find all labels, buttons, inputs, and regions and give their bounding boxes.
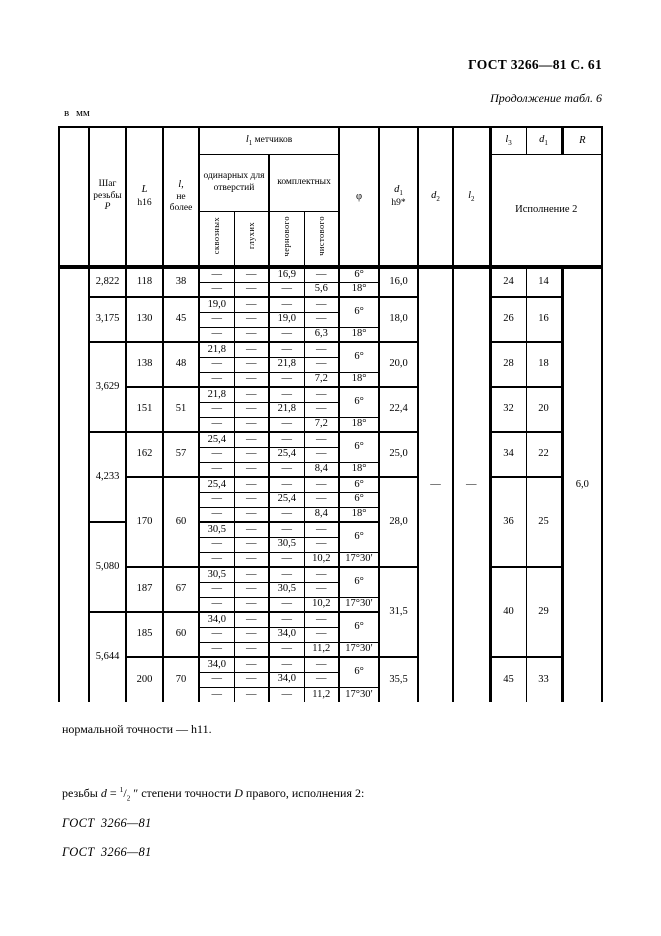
cell-tap-through: 34,0	[199, 657, 234, 672]
cell-tap-through: —	[199, 447, 234, 462]
cell-tap-finish: —	[304, 672, 339, 687]
cell-L: 162	[126, 432, 163, 477]
cell-d1-exec2: 22	[526, 432, 562, 477]
cell-phi: 6°	[339, 612, 379, 642]
cell-tap-finish: 8,4	[304, 462, 339, 477]
cell-tap-rough: 34,0	[269, 627, 304, 642]
col-header-execution-2: Исполнение 2	[490, 154, 602, 267]
cell-pitch: 3,175	[89, 297, 126, 342]
cell-pitch: 5,080	[89, 522, 126, 612]
cell-tap-through: —	[199, 282, 234, 297]
col-header-through: сквозных	[199, 211, 234, 267]
cell-tap-blind: —	[234, 477, 269, 492]
cell-phi: 6°	[339, 522, 379, 552]
cell-d2-span: —	[418, 267, 453, 702]
cell-tap-through: —	[199, 492, 234, 507]
cell-l: 57	[163, 432, 199, 477]
cell-phi: 6°	[339, 567, 379, 597]
cell-tap-through: 34,0	[199, 612, 234, 627]
cell-l: 48	[163, 342, 199, 387]
cell-tap-finish: 10,2	[304, 597, 339, 612]
cell-tap-rough: —	[269, 432, 304, 447]
cell-tap-rough: —	[269, 417, 304, 432]
cell-tap-through: 21,8	[199, 342, 234, 357]
cell-tap-rough: 30,5	[269, 537, 304, 552]
table-continuation-label: Продолжение табл. 6	[490, 91, 602, 106]
cell-tap-rough: —	[269, 612, 304, 627]
cell-tap-blind: —	[234, 372, 269, 387]
cell-tap-finish: 8,4	[304, 507, 339, 522]
cell-tap-rough: —	[269, 282, 304, 297]
cell-tap-blind: —	[234, 357, 269, 372]
col-header-L: Lh16	[126, 127, 163, 267]
cell-d1-exec2: 18	[526, 342, 562, 387]
cell-tap-finish: —	[304, 567, 339, 582]
cell-tap-finish: —	[304, 267, 339, 282]
cell-tap-finish: 10,2	[304, 552, 339, 567]
col-header-complete-taps: комплектных	[269, 154, 339, 211]
cell-tap-blind: —	[234, 657, 269, 672]
col-header-l2: l2	[453, 127, 490, 267]
cell-L: 187	[126, 567, 163, 612]
cell-tap-blind: —	[234, 447, 269, 462]
cell-l3: 24	[490, 267, 526, 297]
cell-phi: 18°	[339, 462, 379, 477]
cell-d1: 31,5	[379, 567, 418, 657]
cell-tap-blind: —	[234, 327, 269, 342]
cell-tap-blind: —	[234, 492, 269, 507]
cell-tap-finish: —	[304, 342, 339, 357]
cell-tap-rough: 25,4	[269, 492, 304, 507]
cell-tap-rough: —	[269, 387, 304, 402]
cell-tap-through: —	[199, 582, 234, 597]
cell-tap-blind: —	[234, 567, 269, 582]
cell-tap-through: 30,5	[199, 567, 234, 582]
col-header-d2: d2	[418, 127, 453, 267]
cell-tap-through: —	[199, 507, 234, 522]
cell-d1-exec2: 33	[526, 657, 562, 702]
cell-L: 130	[126, 297, 163, 342]
cell-tap-rough: 30,5	[269, 582, 304, 597]
cell-tap-rough: —	[269, 342, 304, 357]
cell-L: 170	[126, 477, 163, 567]
cell-d1: 20,0	[379, 342, 418, 387]
col-header-l-max: l,неболее	[163, 127, 199, 267]
col-header-d1: d1h9*	[379, 127, 418, 267]
cell-tap-finish: 11,2	[304, 642, 339, 657]
cell-phi: 17°30′	[339, 642, 379, 657]
col-header-R: R	[562, 127, 602, 154]
cell-pitch: 4,233	[89, 432, 126, 522]
cell-tap-blind: —	[234, 342, 269, 357]
cell-tap-rough: 16,9	[269, 267, 304, 282]
cell-l: 60	[163, 612, 199, 657]
cell-phi: 6°	[339, 432, 379, 462]
cell-tap-finish: 7,2	[304, 417, 339, 432]
cell-tap-rough: —	[269, 477, 304, 492]
cell-tap-rough: —	[269, 597, 304, 612]
cell-l3: 45	[490, 657, 526, 702]
cell-L: 200	[126, 657, 163, 702]
cell-tap-rough: —	[269, 507, 304, 522]
cell-tap-through: —	[199, 402, 234, 417]
col-header-pitch: ШагрезьбыР	[89, 127, 126, 267]
cell-tap-finish: —	[304, 402, 339, 417]
col-header-empty	[59, 127, 89, 267]
col-header-finish: чистового	[304, 211, 339, 267]
cell-tap-finish: —	[304, 297, 339, 312]
pitch-label: Шаг	[99, 179, 117, 189]
cell-tap-finish: —	[304, 582, 339, 597]
cell-tap-through: —	[199, 687, 234, 702]
cell-tap-finish: 7,2	[304, 372, 339, 387]
table-row: 187 67 30,5 — — — 6° 31,5 40 29	[59, 567, 602, 582]
cell-tap-finish: 11,2	[304, 687, 339, 702]
table-row: 200 70 34,0 — — — 6° 35,5 45 33	[59, 657, 602, 672]
cell-tap-finish: —	[304, 522, 339, 537]
cell-phi: 6°	[339, 492, 379, 507]
col-header-blind: глухих	[234, 211, 269, 267]
col-header-d1-exec: d1	[526, 127, 562, 154]
cell-L: 151	[126, 387, 163, 432]
col-header-l3: l3	[490, 127, 526, 154]
gost-reference-2: ГОСТ 3266—81	[62, 845, 152, 860]
cell-tap-blind: —	[234, 537, 269, 552]
cell-tap-finish: —	[304, 477, 339, 492]
cell-d1-exec2: 14	[526, 267, 562, 297]
cell-tap-finish: —	[304, 357, 339, 372]
cell-phi: 17°30′	[339, 597, 379, 612]
cell-tap-rough: —	[269, 687, 304, 702]
cell-tap-rough: —	[269, 552, 304, 567]
cell-tap-blind: —	[234, 462, 269, 477]
cell-tap-blind: —	[234, 552, 269, 567]
cell-tap-through: —	[199, 627, 234, 642]
phi-symbol: φ	[356, 191, 362, 202]
cell-tap-blind: —	[234, 312, 269, 327]
table-row: 2,822 118 38 — — 16,9 — 6° 16,0 — — 24 1…	[59, 267, 602, 282]
cell-tap-blind: —	[234, 522, 269, 537]
cell-tap-through: —	[199, 642, 234, 657]
cell-tap-rough: —	[269, 657, 304, 672]
cell-d1-exec2: 20	[526, 387, 562, 432]
cell-tap-rough: 21,8	[269, 402, 304, 417]
cell-l3: 40	[490, 567, 526, 657]
cell-phi: 6°	[339, 477, 379, 492]
cell-tap-rough: —	[269, 462, 304, 477]
cell-d1-exec2: 29	[526, 567, 562, 657]
cell-tap-blind: —	[234, 642, 269, 657]
cell-l2-span: —	[453, 267, 490, 702]
cell-tap-through: —	[199, 672, 234, 687]
cell-phi: 18°	[339, 372, 379, 387]
cell-phi: 18°	[339, 282, 379, 297]
cell-L: 118	[126, 267, 163, 297]
cell-tap-through: —	[199, 312, 234, 327]
cell-tap-blind: —	[234, 627, 269, 642]
cell-d1-exec2: 25	[526, 477, 562, 567]
cell-tap-blind: —	[234, 387, 269, 402]
cell-tap-blind: —	[234, 612, 269, 627]
table-row: ШагрезьбыР Lh16 l,неболее l1 метчиков φ …	[59, 127, 602, 154]
col-header-l1-taps: l1 метчиков	[199, 127, 339, 154]
cell-tap-finish: 6,3	[304, 327, 339, 342]
cell-tap-through: —	[199, 417, 234, 432]
cell-tap-rough: —	[269, 372, 304, 387]
cell-tap-rough: —	[269, 327, 304, 342]
cell-tap-blind: —	[234, 402, 269, 417]
cell-tap-rough: —	[269, 522, 304, 537]
cell-tap-finish: —	[304, 447, 339, 462]
cell-tap-blind: —	[234, 672, 269, 687]
cell-tap-through: 19,0	[199, 297, 234, 312]
cell-L: 185	[126, 612, 163, 657]
col-header-single-taps: одинарных для отверстий	[199, 154, 269, 211]
cell-tap-finish: —	[304, 432, 339, 447]
cell-tap-rough: 25,4	[269, 447, 304, 462]
units-label: в мм	[64, 107, 90, 119]
cell-tap-rough: —	[269, 642, 304, 657]
cell-phi: 18°	[339, 417, 379, 432]
cell-tap-finish: —	[304, 657, 339, 672]
cell-tap-blind: —	[234, 282, 269, 297]
cell-tap-blind: —	[234, 432, 269, 447]
cell-l3: 36	[490, 477, 526, 567]
cell-d1: 22,4	[379, 387, 418, 432]
gost-reference-1: ГОСТ 3266—81	[62, 816, 152, 831]
cell-tap-rough: —	[269, 297, 304, 312]
cell-tap-finish: —	[304, 312, 339, 327]
cell-pitch: 2,822	[89, 267, 126, 297]
cell-l: 51	[163, 387, 199, 432]
cell-tap-through: 25,4	[199, 477, 234, 492]
cell-phi: 17°30′	[339, 687, 379, 702]
cell-l3: 26	[490, 297, 526, 342]
cell-tap-blind: —	[234, 507, 269, 522]
cell-tap-through: —	[199, 597, 234, 612]
col-header-phi: φ	[339, 127, 379, 267]
table-row: 151 51 21,8 — — — 6° 22,4 32 20	[59, 387, 602, 402]
cell-tap-blind: —	[234, 687, 269, 702]
cell-phi: 18°	[339, 327, 379, 342]
cell-tap-rough: 21,8	[269, 357, 304, 372]
footnote-accuracy: нормальной точности — h11.	[62, 722, 212, 737]
cell-tap-finish: —	[304, 387, 339, 402]
cell-phi: 6°	[339, 267, 379, 282]
spec-table: ШагрезьбыР Lh16 l,неболее l1 метчиков φ …	[58, 126, 603, 702]
gost-number-header: ГОСТ 3266—81 С. 61	[468, 57, 602, 73]
cell-tap-through: —	[199, 552, 234, 567]
cell-tap-finish: —	[304, 537, 339, 552]
col-header-rough: чернового	[269, 211, 304, 267]
cell-tap-through: —	[199, 267, 234, 282]
table-row: 3,175 130 45 19,0 — — — 6° 18,0 26 16	[59, 297, 602, 312]
cell-tap-through: 21,8	[199, 387, 234, 402]
cell-d1-exec2: 16	[526, 297, 562, 342]
cell-l: 70	[163, 657, 199, 702]
cell-l: 67	[163, 567, 199, 612]
cell-l3: 34	[490, 432, 526, 477]
cell-tap-finish: —	[304, 492, 339, 507]
cell-l: 38	[163, 267, 199, 297]
cell-pitch: 3,629	[89, 342, 126, 432]
footnote-thread: резьбы d = 1/2 ″ степени точности D прав…	[62, 785, 364, 802]
cell-tap-rough: 34,0	[269, 672, 304, 687]
cell-phi: 17°30′	[339, 552, 379, 567]
cell-l3: 28	[490, 342, 526, 387]
table-row: 170 60 25,4 — — — 6° 28,0 36 25	[59, 477, 602, 492]
cell-tap-blind: —	[234, 267, 269, 282]
cell-tap-through: —	[199, 537, 234, 552]
cell-tap-through: 30,5	[199, 522, 234, 537]
cell-empty-col	[59, 267, 89, 702]
cell-phi: 18°	[339, 507, 379, 522]
cell-tap-through: 25,4	[199, 432, 234, 447]
cell-tap-blind: —	[234, 597, 269, 612]
table-row: 4,233 162 57 25,4 — — — 6° 25,0 34 22	[59, 432, 602, 447]
cell-phi: 6°	[339, 297, 379, 327]
cell-tap-through: —	[199, 462, 234, 477]
cell-phi: 6°	[339, 657, 379, 687]
cell-tap-through: —	[199, 357, 234, 372]
cell-phi: 6°	[339, 342, 379, 372]
cell-tap-rough: —	[269, 567, 304, 582]
cell-l: 60	[163, 477, 199, 567]
cell-phi: 6°	[339, 387, 379, 417]
cell-pitch: 5,644	[89, 612, 126, 702]
cell-tap-blind: —	[234, 582, 269, 597]
cell-d1: 16,0	[379, 267, 418, 297]
cell-l3: 32	[490, 387, 526, 432]
document-page: ГОСТ 3266—81 С. 61 Продолжение табл. 6 в…	[0, 0, 661, 936]
cell-d1: 28,0	[379, 477, 418, 567]
cell-tap-finish: 5,6	[304, 282, 339, 297]
cell-L: 138	[126, 342, 163, 387]
cell-tap-finish: —	[304, 612, 339, 627]
table-row: 3,629 138 48 21,8 — — — 6° 20,0 28 18	[59, 342, 602, 357]
cell-tap-blind: —	[234, 297, 269, 312]
cell-tap-finish: —	[304, 627, 339, 642]
cell-d1: 35,5	[379, 657, 418, 702]
cell-tap-rough: 19,0	[269, 312, 304, 327]
cell-tap-through: —	[199, 327, 234, 342]
cell-tap-blind: —	[234, 417, 269, 432]
cell-R-span: 6,0	[562, 267, 602, 702]
cell-d1: 18,0	[379, 297, 418, 342]
cell-l: 45	[163, 297, 199, 342]
cell-tap-through: —	[199, 372, 234, 387]
cell-d1: 25,0	[379, 432, 418, 477]
